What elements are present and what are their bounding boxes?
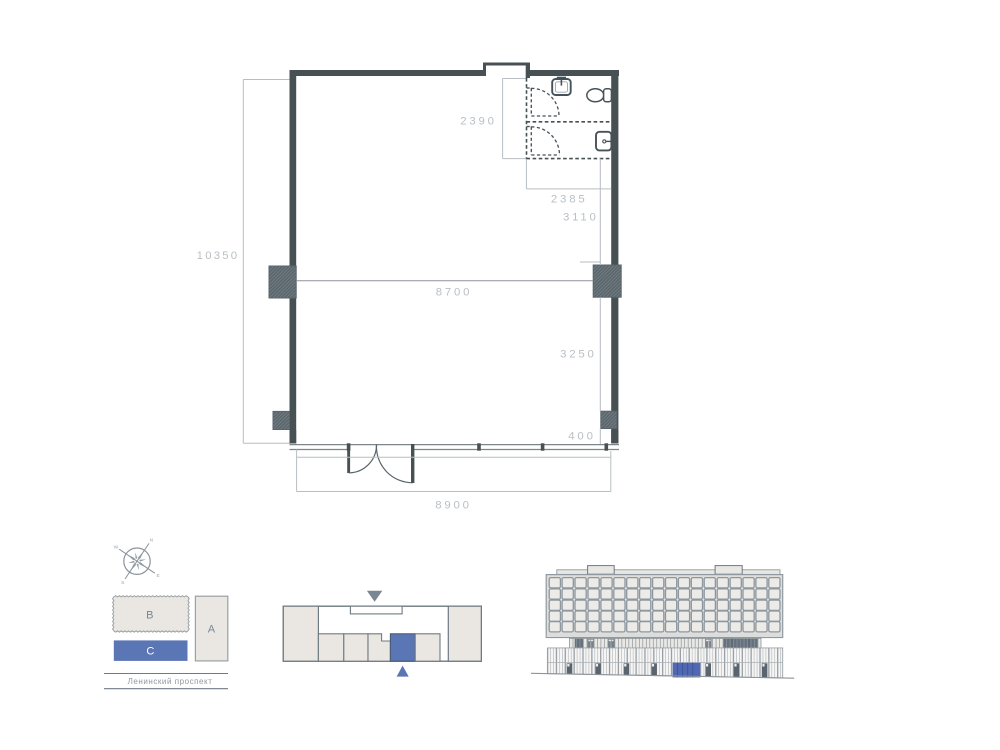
svg-text:10350: 10350 [197, 250, 240, 262]
svg-text:2390: 2390 [460, 115, 497, 127]
svg-text:A: A [208, 623, 216, 635]
svg-text:3250: 3250 [560, 349, 597, 361]
svg-text:400: 400 [568, 431, 595, 443]
svg-text:N: N [150, 538, 154, 544]
svg-text:Ленинский проспект: Ленинский проспект [128, 677, 213, 686]
svg-text:8900: 8900 [435, 499, 472, 511]
svg-text:S: S [121, 580, 124, 586]
svg-text:8700: 8700 [436, 286, 473, 298]
svg-text:C: C [146, 646, 154, 658]
svg-text:3110: 3110 [563, 212, 599, 224]
svg-text:2385: 2385 [551, 194, 588, 206]
svg-text:E: E [156, 573, 159, 579]
svg-text:B: B [146, 609, 153, 621]
svg-text:W: W [114, 545, 119, 551]
